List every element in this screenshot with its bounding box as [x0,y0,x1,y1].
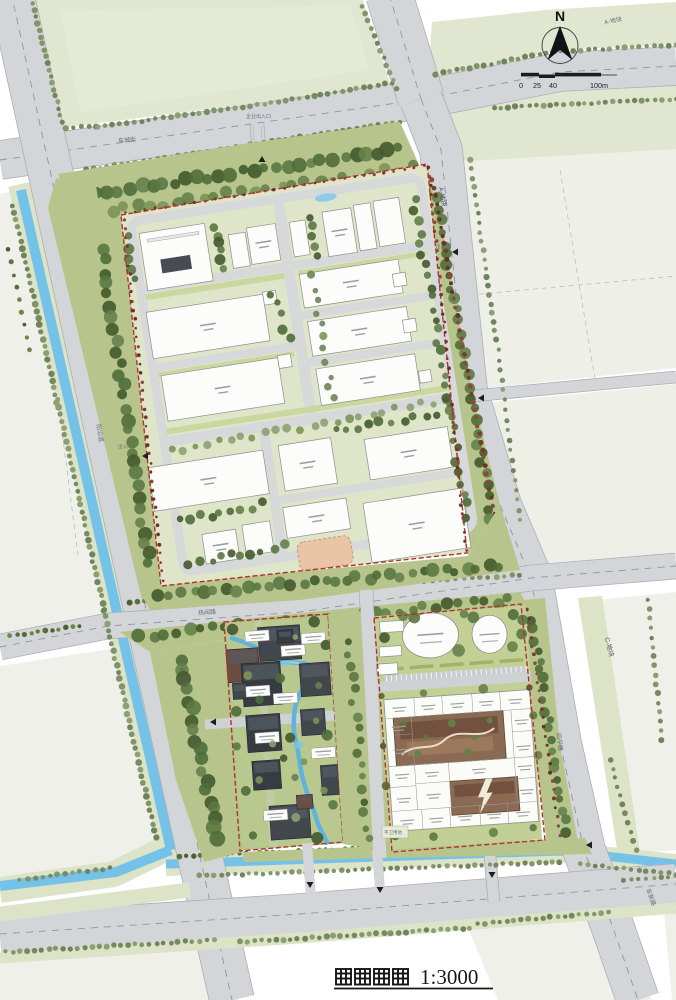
svg-text:25: 25 [533,81,541,90]
svg-text:企业出入口: 企业出入口 [246,113,271,120]
svg-text:出入口: 出入口 [436,243,450,250]
svg-text:N: N [555,8,565,24]
svg-text:平卫用地: 平卫用地 [384,829,402,836]
svg-text:100m: 100m [590,81,608,90]
svg-text:1:3000: 1:3000 [420,965,478,989]
svg-text:出入口: 出入口 [118,443,132,450]
svg-text:40: 40 [549,81,557,90]
svg-text:0: 0 [519,81,523,90]
